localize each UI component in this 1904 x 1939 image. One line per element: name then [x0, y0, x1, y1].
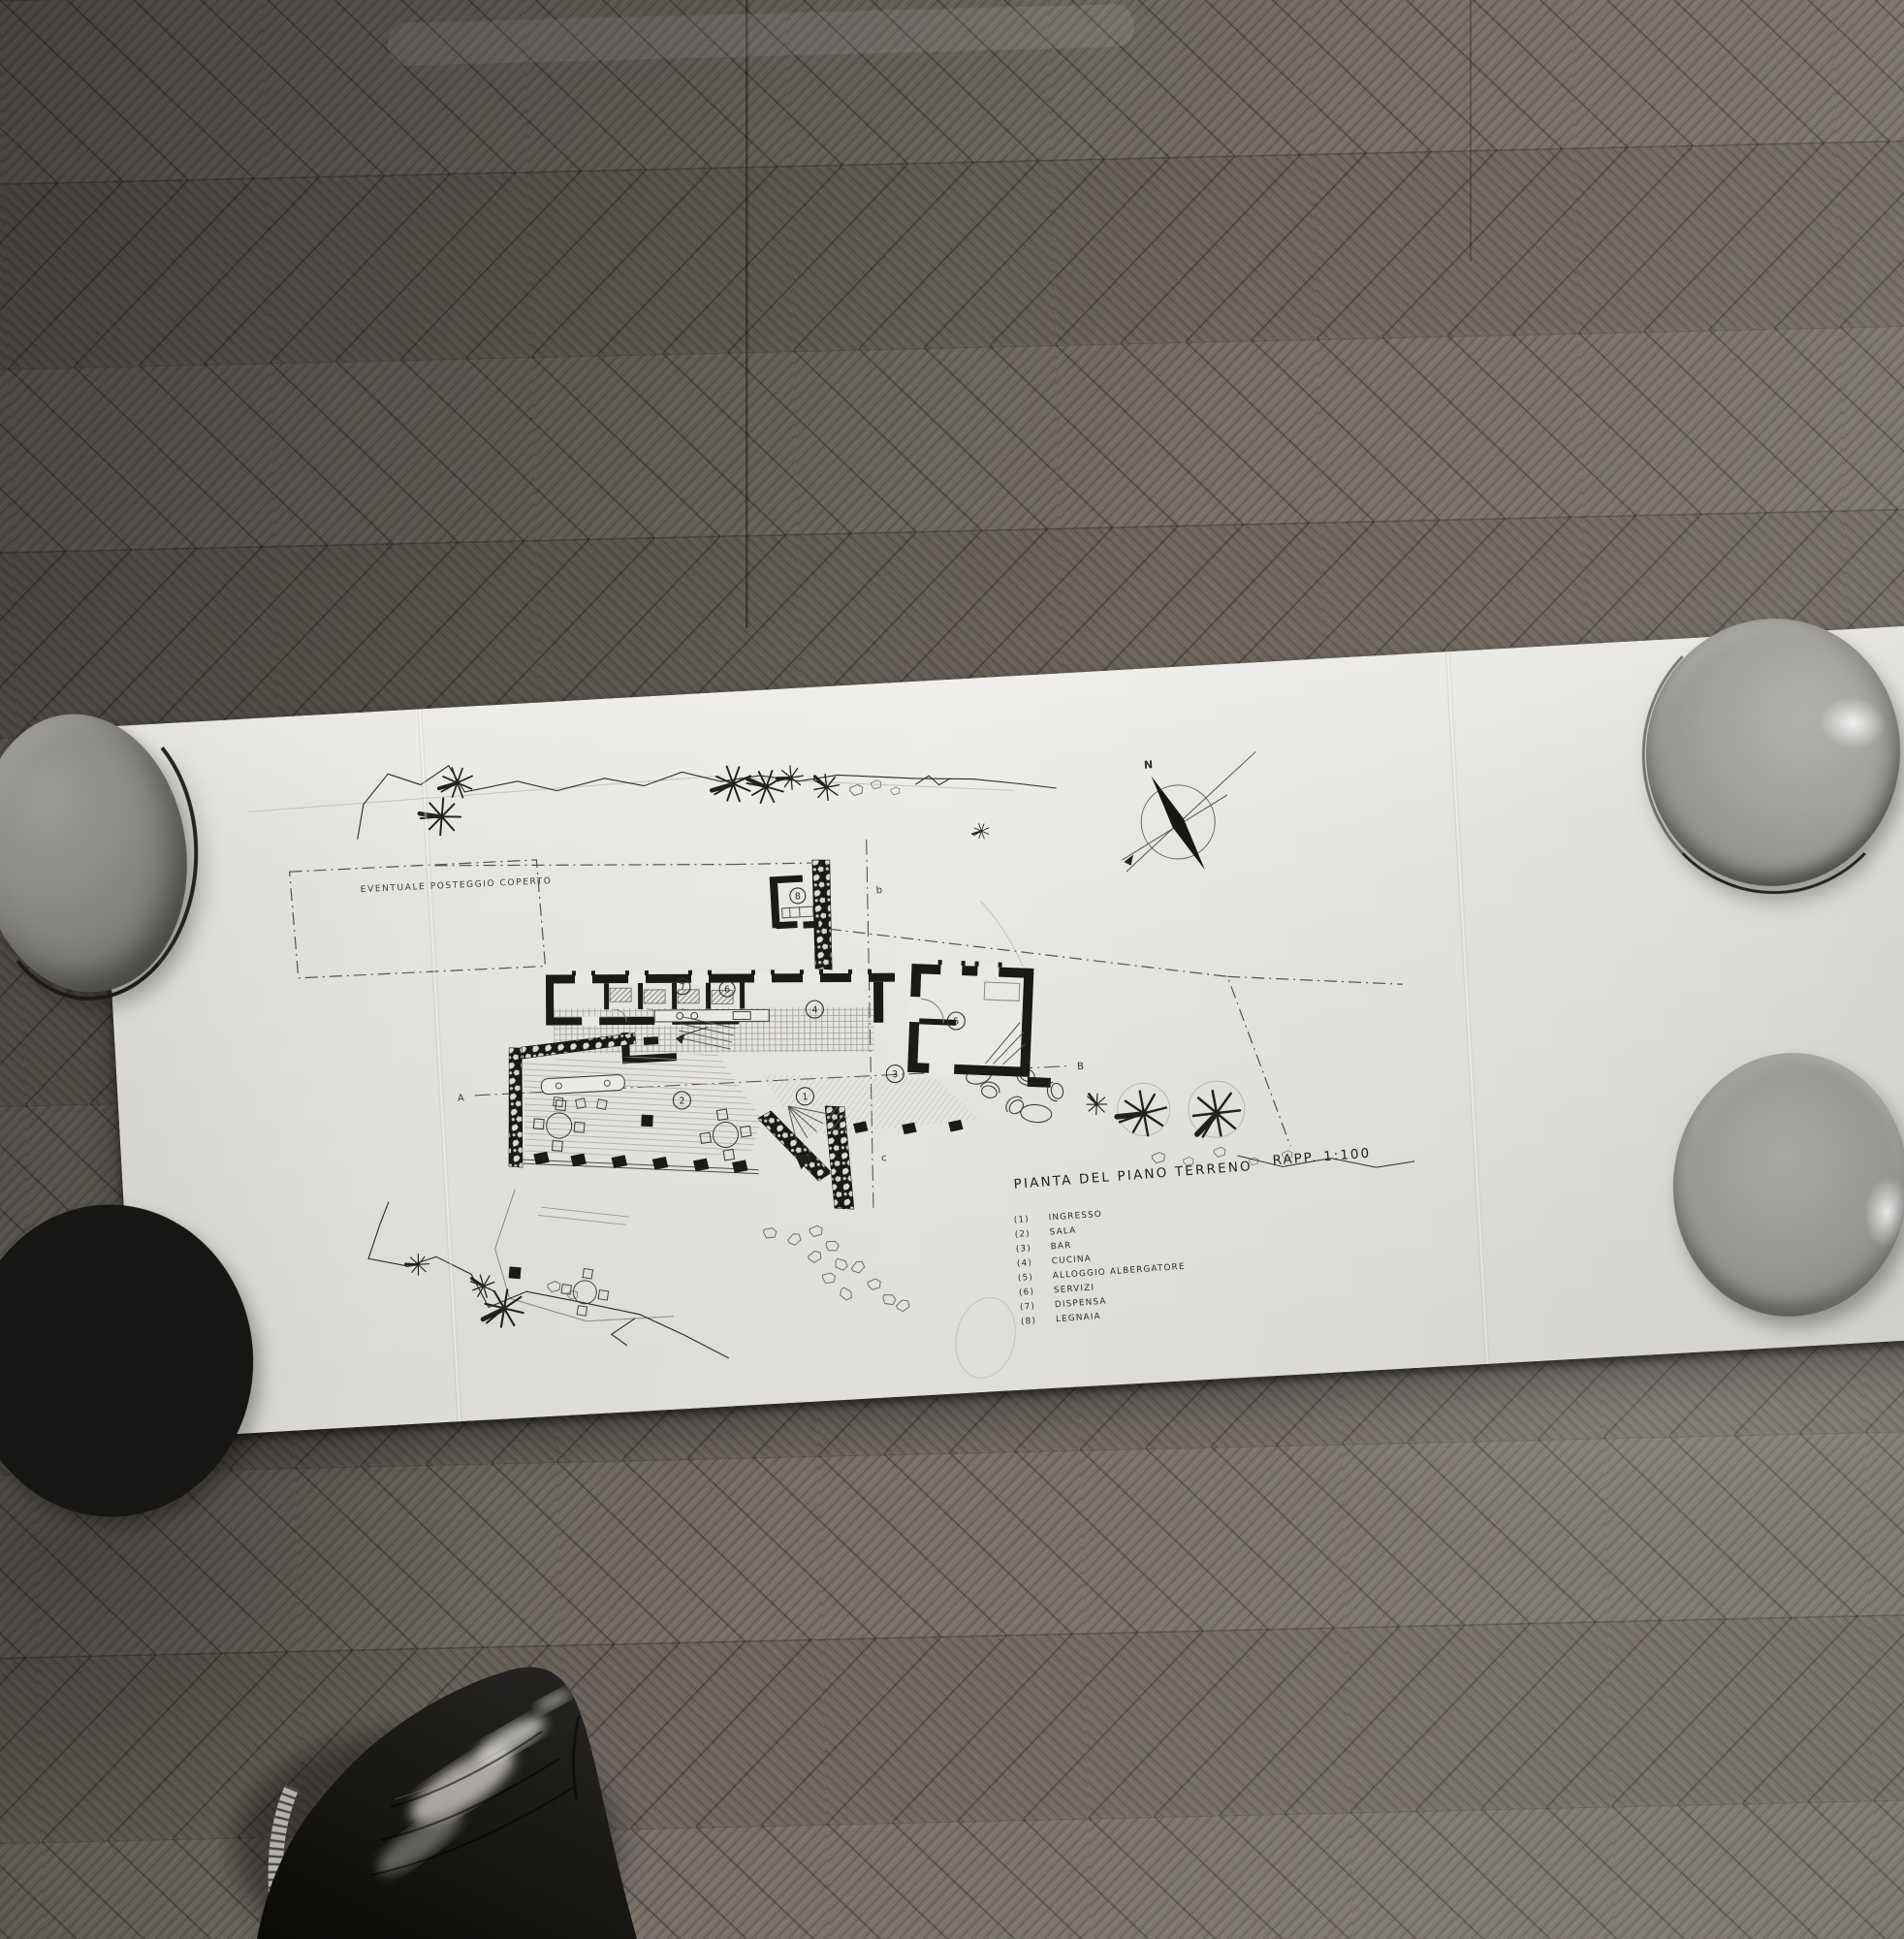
legend-num: (1) — [1013, 1215, 1030, 1225]
legend-label: SERVIZI — [1054, 1283, 1095, 1295]
trees-bottom — [402, 1242, 580, 1336]
legend-label: CUCINA — [1052, 1255, 1093, 1267]
legend-num: (2) — [1015, 1229, 1031, 1240]
compass-rose — [1117, 751, 1262, 874]
legend-label: BAR — [1050, 1241, 1071, 1252]
legend-label: INGRESSO — [1048, 1210, 1102, 1224]
room-alloggio — [905, 959, 1056, 1088]
legend-num: (7) — [1020, 1302, 1036, 1313]
parking-dashed-outline — [290, 811, 1412, 1201]
legnaia-room — [769, 859, 836, 972]
legend-num: (4) — [1017, 1258, 1033, 1269]
legend-label: DISPENSA — [1055, 1297, 1107, 1311]
plan-title: PIANTA DEL PIANO TERRENO — [1013, 1159, 1253, 1192]
plan-title-block: PIANTA DEL PIANO TERRENO RAPP. 1:100 — [1013, 1146, 1372, 1192]
section-label-b: B — [1077, 1062, 1085, 1072]
floor-seam-vertical — [746, 0, 748, 628]
legend-label: SALA — [1049, 1226, 1076, 1238]
section-label-a: A — [458, 1093, 465, 1103]
legend-num: (3) — [1016, 1244, 1032, 1255]
legend-num: (5) — [1018, 1273, 1034, 1284]
floor-plan-drawing: EVENTUALE POSTEGGIO COPERTO A B b c — [97, 620, 1904, 1439]
room-circle-7: 7 — [680, 982, 686, 993]
legend: (1) INGRESSO (2) SALA (3) BAR (4) CUCINA… — [1013, 1204, 1189, 1327]
room-circle-2: 2 — [679, 1096, 685, 1106]
room-circle-4: 4 — [811, 1004, 818, 1015]
room-circle-3: 3 — [892, 1069, 899, 1080]
lower-terrace — [492, 1181, 674, 1326]
terrain-sketch-bottom — [365, 1184, 728, 1378]
trees-top — [412, 738, 990, 870]
legend-num: (6) — [1019, 1287, 1035, 1298]
photo-scene: EVENTUALE POSTEGGIO COPERTO A B b c — [0, 0, 1904, 1939]
leather-shoe-toe — [218, 1640, 654, 1939]
floor-seam-right — [1470, 0, 1472, 262]
plan-scale: RAPP. 1:100 — [1272, 1146, 1372, 1169]
room-circle-5: 5 — [953, 1016, 960, 1027]
parking-label: EVENTUALE POSTEGGIO COPERTO — [361, 876, 553, 895]
stone-path — [762, 1219, 911, 1320]
north-label: N — [1144, 758, 1154, 771]
room-circle-1: 1 — [802, 1092, 809, 1102]
legend-label: LEGNAIA — [1056, 1312, 1101, 1324]
blueprint-paper: EVENTUALE POSTEGGIO COPERTO A B b c — [97, 620, 1904, 1439]
room-circle-8: 8 — [795, 891, 802, 902]
legend-num: (8) — [1021, 1317, 1037, 1327]
room-circle-6: 6 — [724, 984, 731, 995]
section-label-cut-c: c — [881, 1153, 887, 1163]
section-label-cut-b: b — [875, 885, 882, 896]
